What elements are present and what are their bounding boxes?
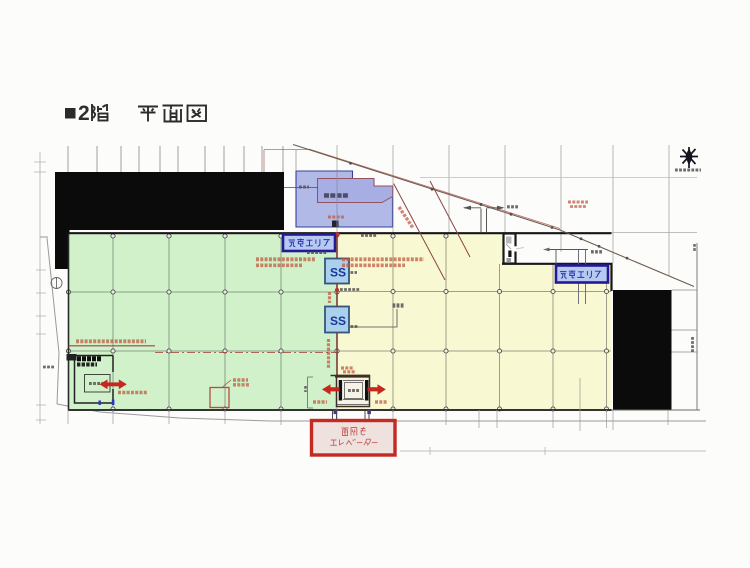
svg-text:2: 2 (78, 102, 90, 125)
svg-text:SS: SS (330, 314, 346, 328)
svg-text:SS: SS (330, 266, 346, 280)
